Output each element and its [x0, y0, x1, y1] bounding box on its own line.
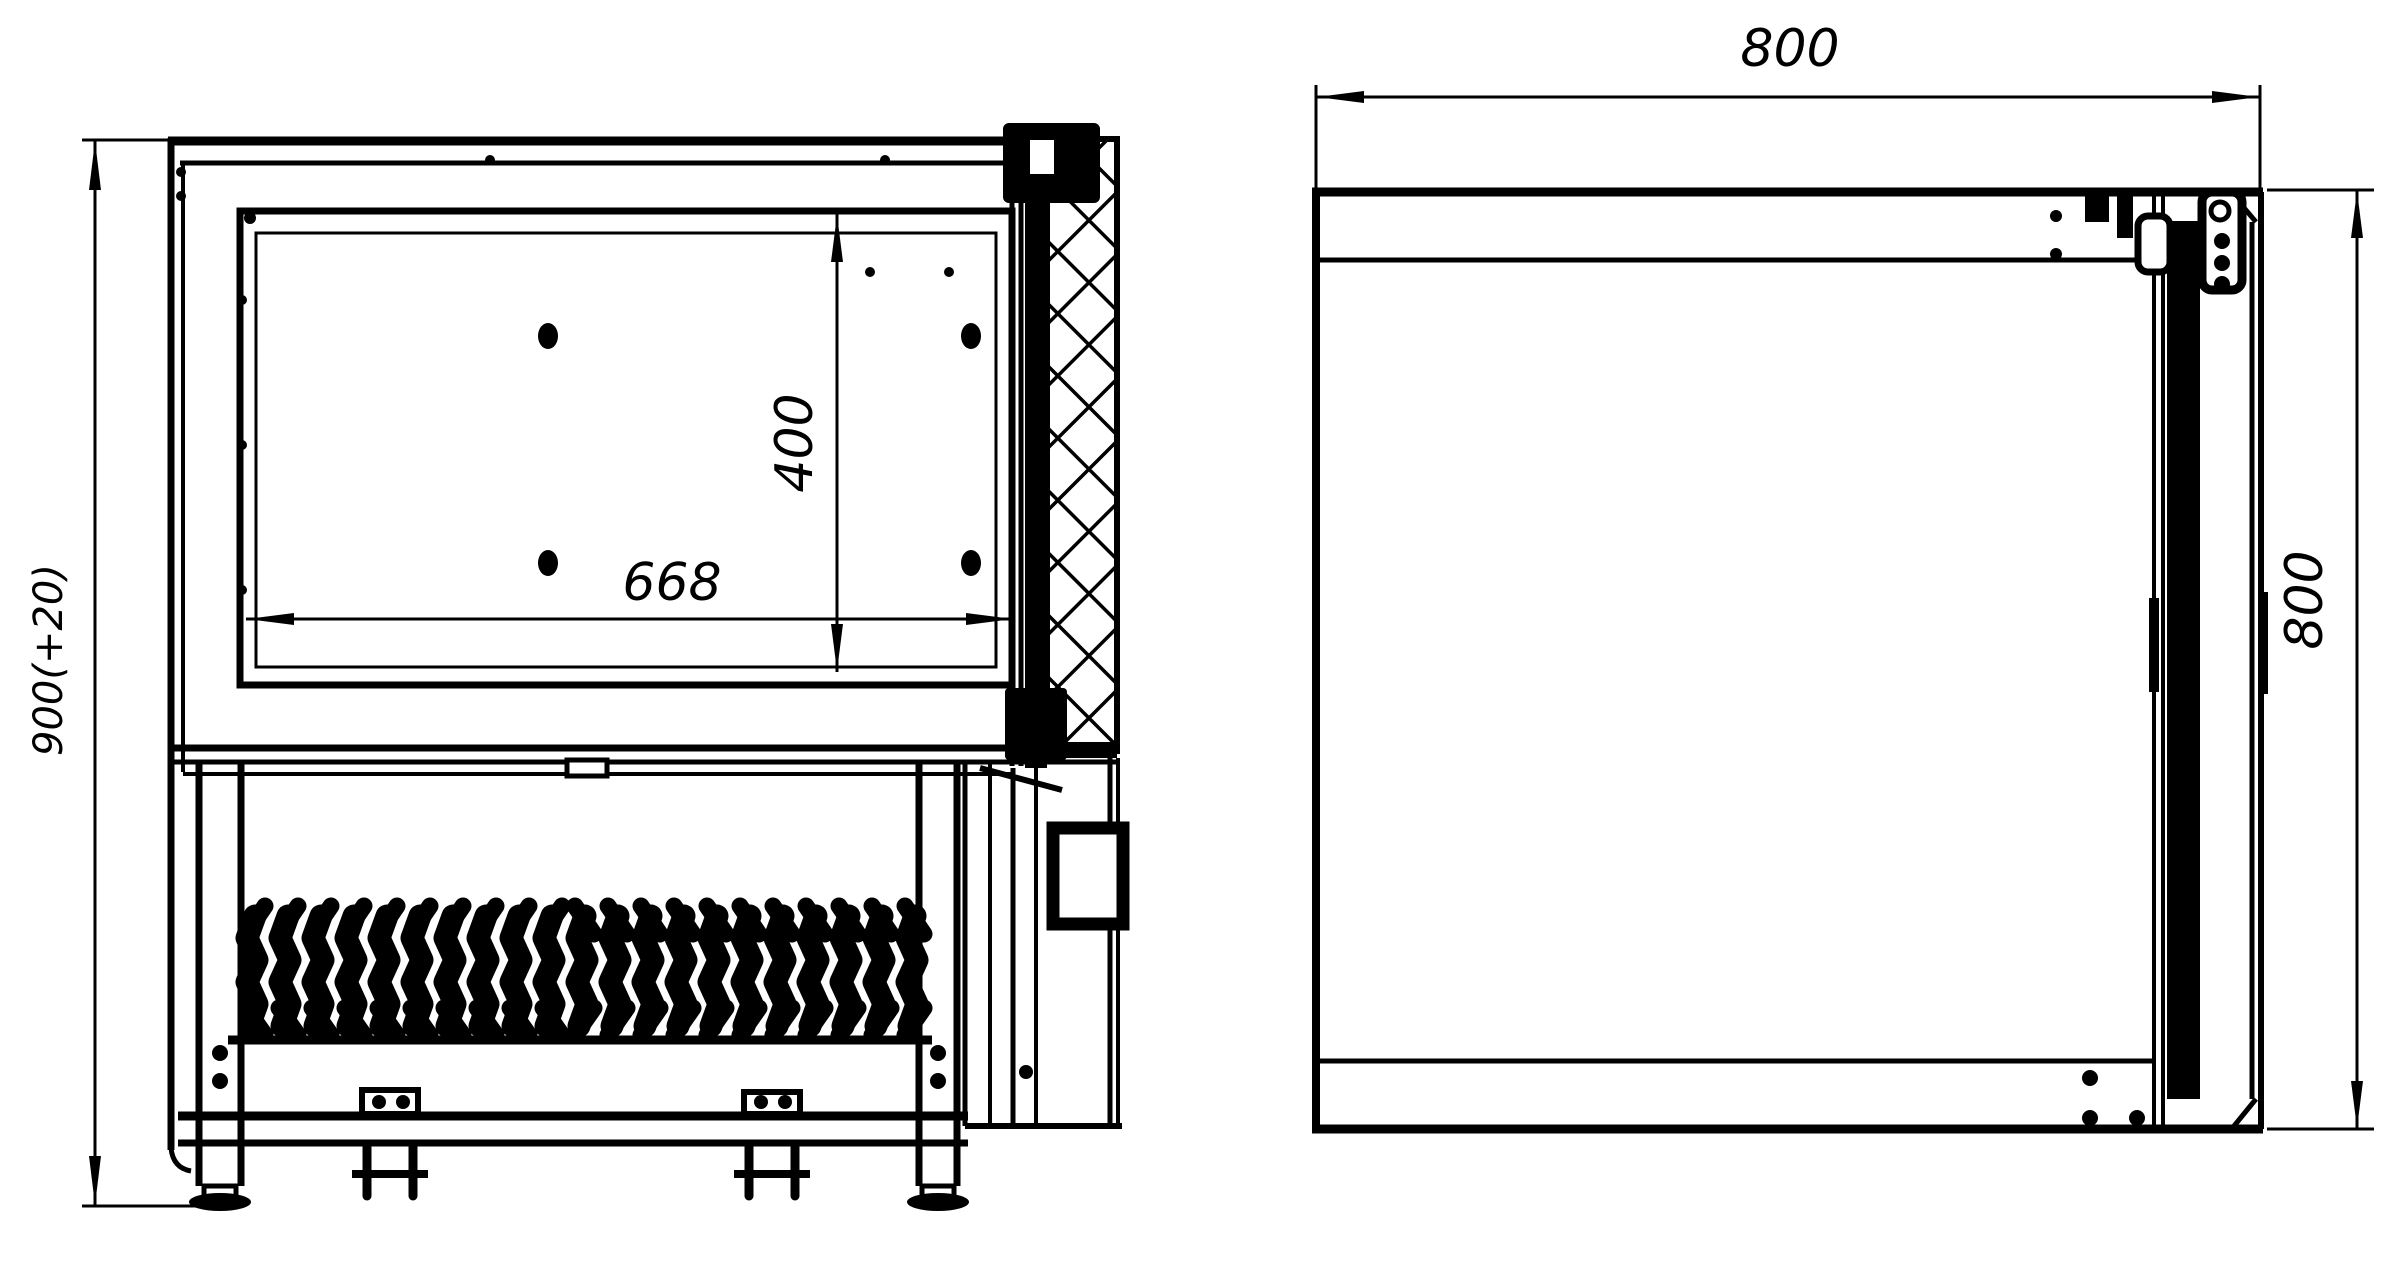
plan-door: [2149, 192, 2268, 1129]
adjustable-foot: [907, 1193, 969, 1211]
dim-overall-width-label: 800: [1740, 19, 1839, 79]
arrowhead-icon: [2351, 191, 2363, 238]
door-insulation-hatch: [1047, 139, 1117, 751]
arrowhead-icon: [247, 613, 294, 625]
dim-overall-depth-label: 800: [2275, 550, 2335, 649]
dimension-overall-width: 800: [1316, 19, 2260, 205]
arrowhead-icon: [2212, 91, 2259, 103]
base-frame: [178, 1116, 968, 1143]
dimension-overall-depth: 800: [2267, 190, 2374, 1129]
hinge-notch: [1030, 140, 1054, 174]
plan-bottom-screws: [2082, 1070, 2145, 1126]
shelf-hole: [538, 550, 558, 576]
drain-fitting: [567, 760, 607, 776]
drawing-canvas: 900(+20): [0, 0, 2405, 1271]
door-gasket: [2259, 592, 2268, 694]
arrowhead-icon: [966, 613, 1013, 625]
adjustable-foot: [189, 1193, 251, 1211]
door-lock-strip: [2149, 598, 2159, 692]
panel-hook: [171, 1148, 191, 1171]
dim-chamber-depth-label: 400: [765, 393, 825, 492]
electrical-box: [1053, 828, 1123, 924]
pipe: [980, 768, 1062, 790]
door-panel: [2167, 221, 2200, 1099]
shelf-hole: [538, 323, 558, 349]
dim-chamber-width-label: 668: [622, 553, 721, 613]
top-view: 800: [1312, 19, 2374, 1133]
dimension-chamber-width: 668: [246, 553, 1014, 625]
shelf-hole: [961, 550, 981, 576]
arrowhead-icon: [2351, 1081, 2363, 1128]
door-bottom-edge: [1047, 742, 1117, 758]
dimension-chamber-depth: 400: [765, 214, 843, 672]
inner-chamber: [237, 211, 1012, 685]
dim-overall-height-label: 900(+20): [26, 564, 72, 756]
plan-hinge-bracket: [2202, 192, 2242, 292]
arrowhead-icon: [1317, 91, 1364, 103]
arrowhead-icon: [831, 624, 843, 671]
shelf-hole: [961, 323, 981, 349]
arrowhead-icon: [89, 1156, 101, 1205]
condenser-fins: [246, 906, 924, 1035]
technical-drawing: 900(+20): [0, 0, 2405, 1271]
plan-outline: [1312, 188, 2263, 1133]
dimension-overall-height: 900(+20): [26, 140, 214, 1206]
arrowhead-icon: [831, 215, 843, 262]
side-view: 900(+20): [26, 123, 1123, 1211]
arrowhead-icon: [89, 141, 101, 190]
door-inner-panel: [1025, 128, 1047, 768]
